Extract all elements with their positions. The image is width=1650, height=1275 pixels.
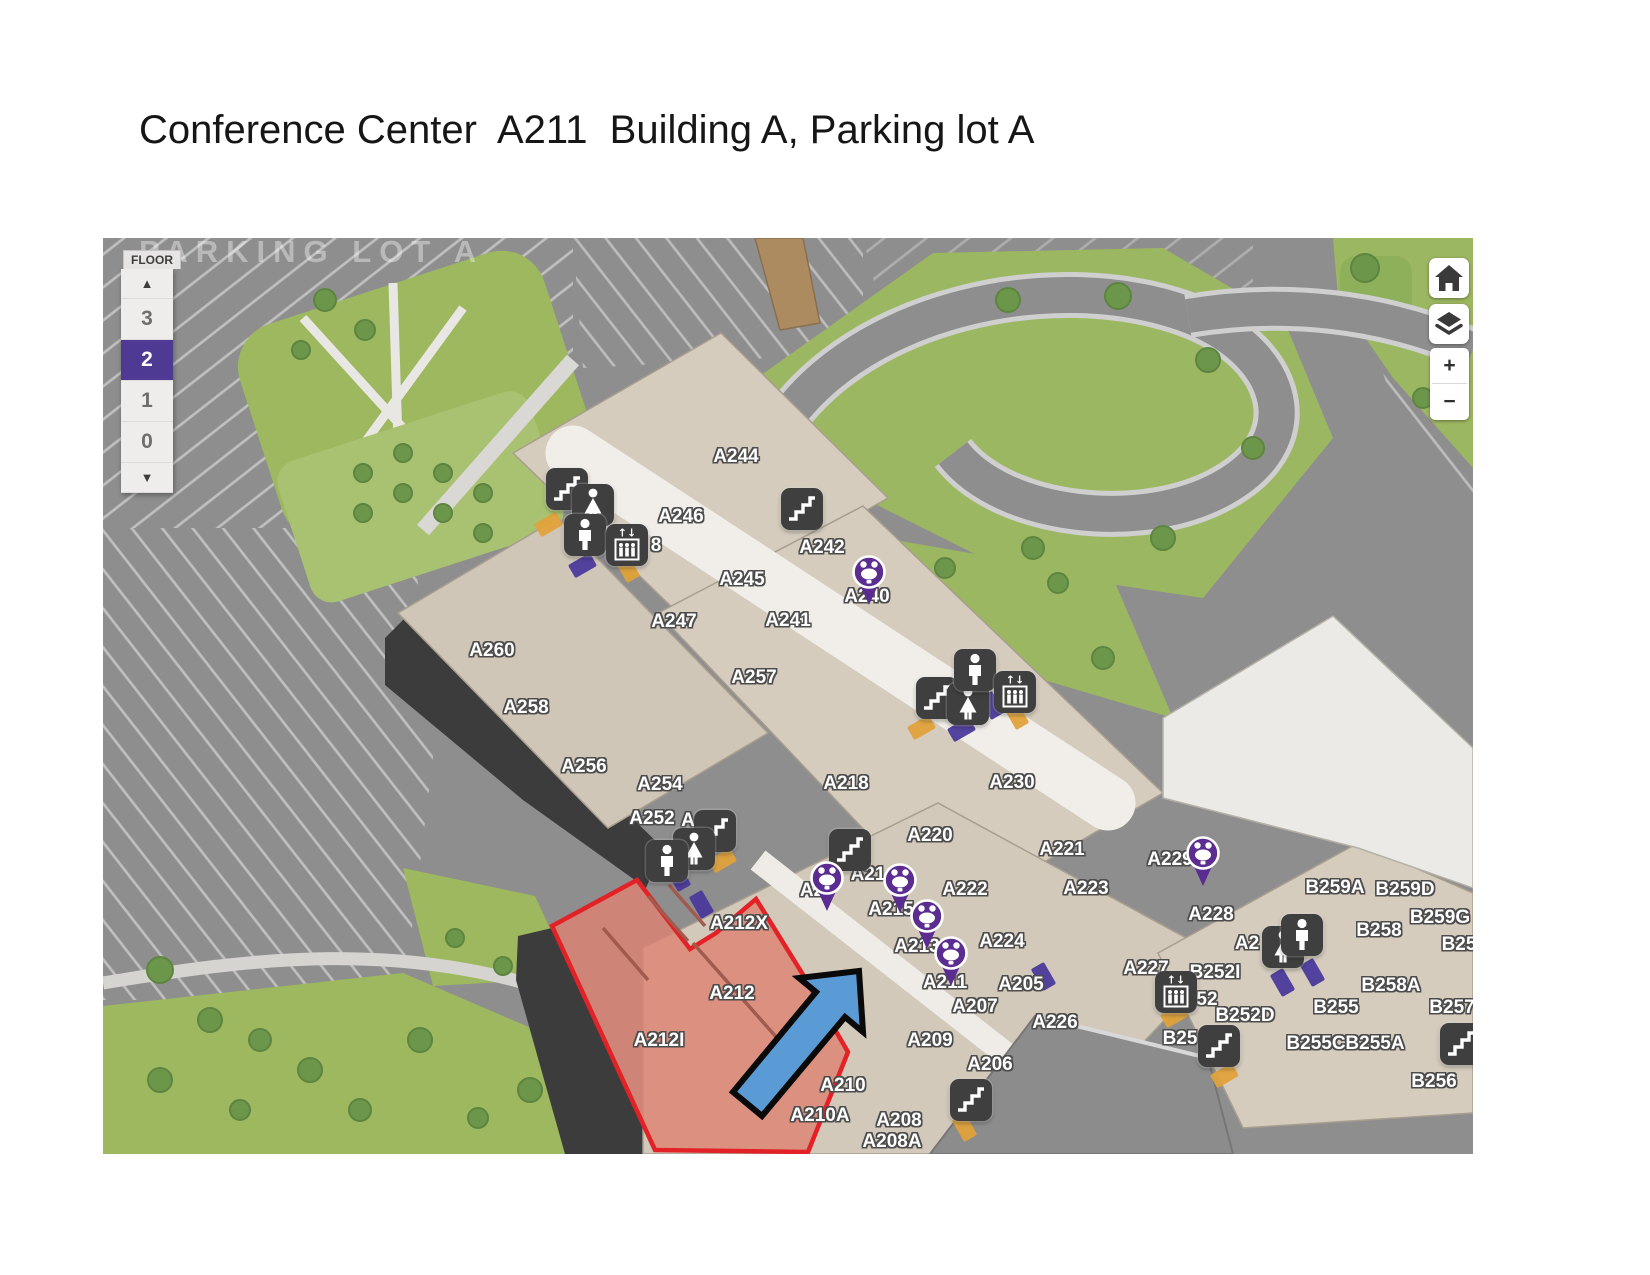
floor-option-0[interactable]: 0 <box>121 422 173 463</box>
page-title: Conference Center A211 Building A, Parki… <box>139 108 1034 153</box>
layers-icon <box>1429 304 1469 344</box>
floor-list: ▲ 3210 ▼ <box>121 269 173 493</box>
zoom-controls: + − <box>1430 348 1469 420</box>
floor-selector: FLOOR ▲ 3210 ▼ <box>121 250 181 493</box>
floor-selector-title: FLOOR <box>123 250 181 269</box>
floor-option-1[interactable]: 1 <box>121 381 173 422</box>
direction-arrow <box>733 971 863 1116</box>
floor-option-3[interactable]: 3 <box>121 299 173 340</box>
floor-option-2[interactable]: 2 <box>121 340 173 381</box>
zoom-out-button[interactable]: − <box>1430 384 1469 419</box>
campus-map[interactable]: PARKING LOT A A244A2468A242A245A240A247A… <box>103 238 1473 1154</box>
home-button[interactable] <box>1429 258 1469 298</box>
floor-up-button[interactable]: ▲ <box>121 269 173 299</box>
zoom-in-button[interactable]: + <box>1430 348 1469 383</box>
home-icon <box>1429 258 1469 298</box>
floor-down-button[interactable]: ▼ <box>121 463 173 493</box>
annotation-layer <box>103 238 1473 1154</box>
layers-button[interactable] <box>1429 304 1469 344</box>
slide-page: Conference Center A211 Building A, Parki… <box>0 0 1650 1275</box>
